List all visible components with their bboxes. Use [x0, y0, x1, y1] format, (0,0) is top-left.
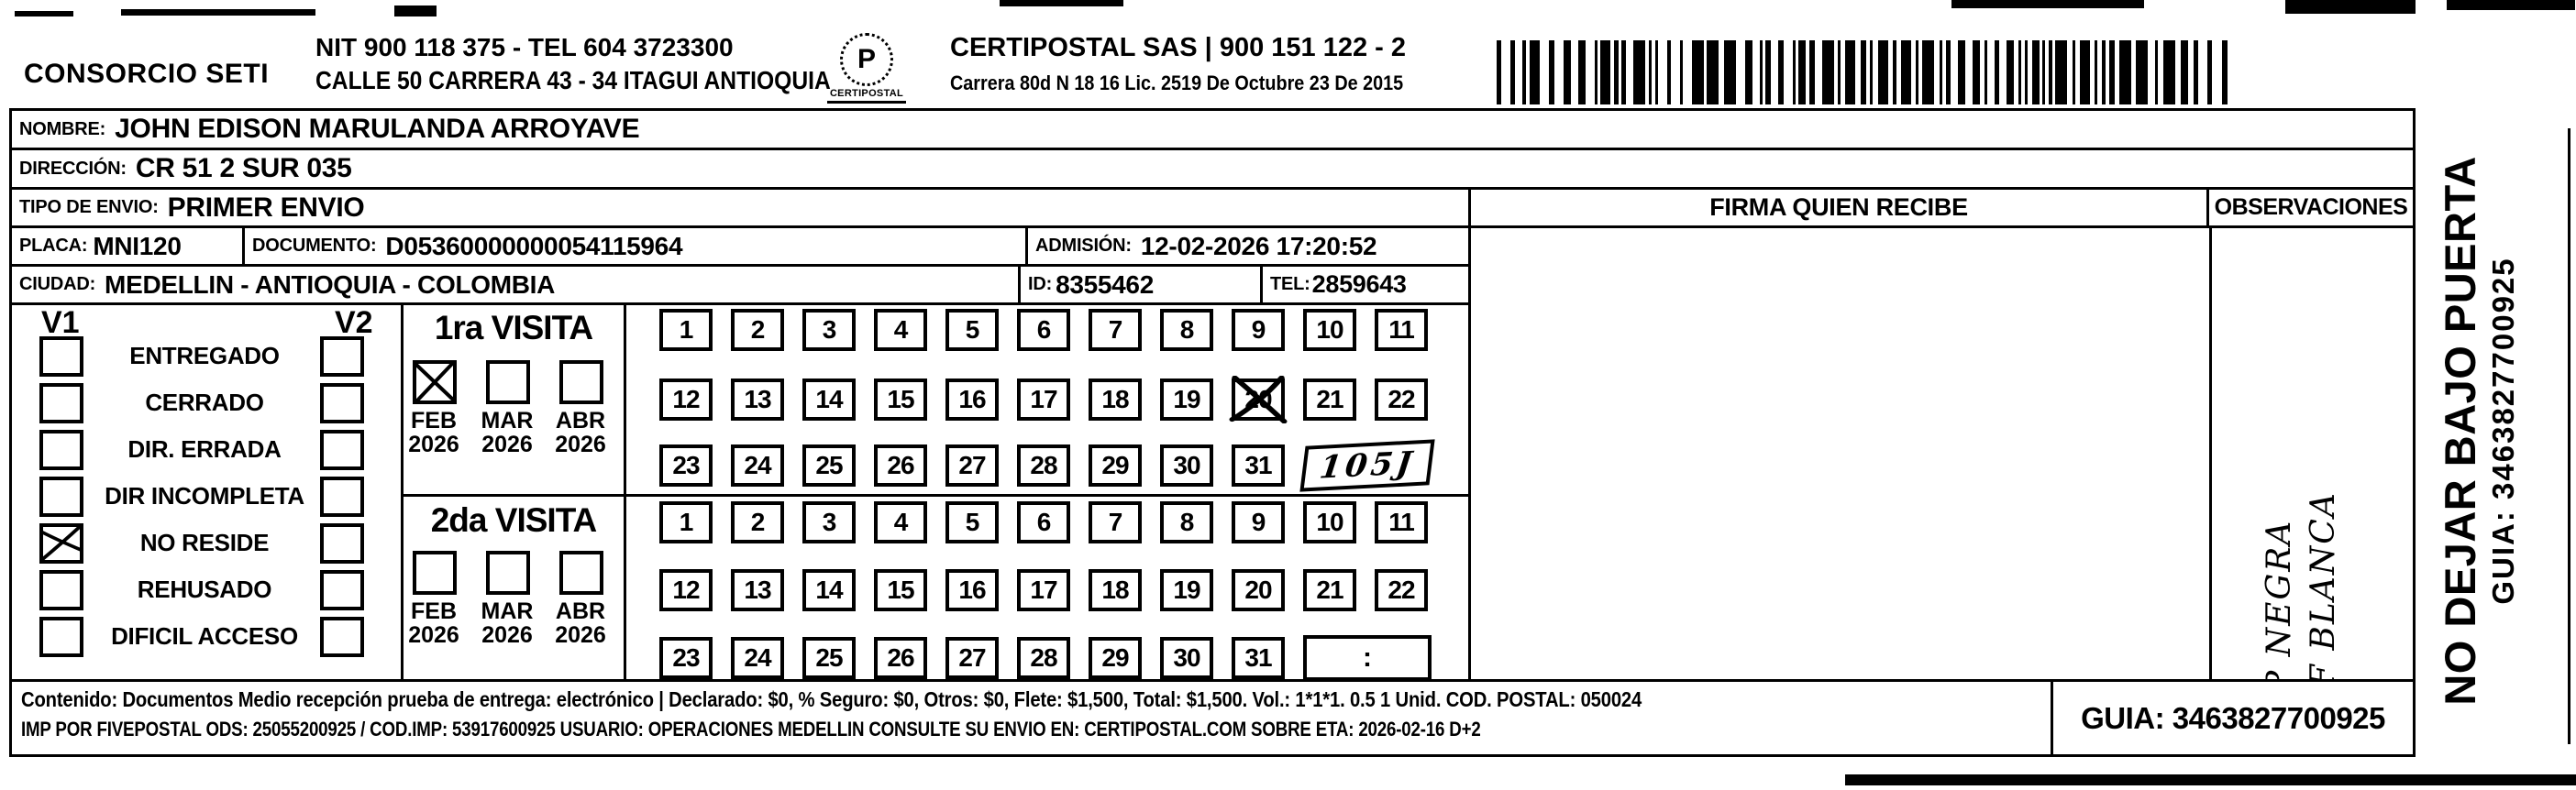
- visit1-day-cell-5[interactable]: 5: [945, 309, 999, 351]
- visit2-day-cell-9[interactable]: 9: [1232, 501, 1285, 543]
- status-option-label: DIFICIL ACCESO: [89, 613, 320, 660]
- visit1-day-cell-7[interactable]: 7: [1089, 309, 1142, 351]
- status-option-label: REHUSADO: [89, 566, 320, 613]
- visit2-day-cell-22[interactable]: 22: [1375, 569, 1428, 611]
- admision-value: 12-02-2026 17:20:52: [1141, 232, 1376, 261]
- guia-number-box: GUIA: 3463827700925: [2051, 682, 2413, 754]
- placa-cell: PLACA: MNI120: [12, 228, 245, 264]
- visit-title-1: 1ra VISITA: [404, 309, 624, 347]
- day-row: 232425262728293031105J: [659, 444, 1432, 488]
- visit2-day-cell-21[interactable]: 21: [1303, 569, 1356, 611]
- visit2-day-cell-4[interactable]: 4: [874, 501, 927, 543]
- checkbox-v2-cerrado[interactable]: [320, 383, 364, 423]
- day-row: 1234567891011: [659, 309, 1428, 351]
- visit1-day-cell-6[interactable]: 6: [1017, 309, 1070, 351]
- scan-artifact: [1845, 774, 2576, 785]
- visit-divider: [404, 494, 1468, 497]
- logo-tagline-smudge: [827, 101, 906, 104]
- visit2-day-cell-7[interactable]: 7: [1089, 501, 1142, 543]
- visit2-day-cell-31[interactable]: 31: [1232, 637, 1285, 679]
- visit2-day-cell-14[interactable]: 14: [802, 569, 856, 611]
- visit1-month-checkbox-feb[interactable]: [413, 360, 457, 404]
- carrier-address: Carrera 80d N 18 16 Lic. 2519 De Octubre…: [950, 71, 1403, 95]
- status-option-row: REHUSADO: [12, 566, 401, 613]
- status-option-label: CERRADO: [89, 379, 320, 426]
- month-year-label: 2026: [477, 622, 537, 649]
- visit1-day-cell-17[interactable]: 17: [1017, 379, 1070, 421]
- visit1-day-cell-26[interactable]: 26: [874, 444, 927, 487]
- scan-artifact: [2285, 0, 2416, 14]
- visit1-day-cell-25[interactable]: 25: [802, 444, 856, 487]
- visit1-day-cell-16[interactable]: 16: [945, 379, 999, 421]
- tipo-envio-value: PRIMER ENVIO: [168, 192, 365, 224]
- visit2-day-cell-6[interactable]: 6: [1017, 501, 1070, 543]
- tel-value: 2859643: [1312, 270, 1407, 299]
- documento-value: D05360000000054115964: [385, 232, 682, 261]
- visit1-day-cell-15[interactable]: 15: [874, 379, 927, 421]
- checkbox-v2-entregado[interactable]: [320, 336, 364, 377]
- delivery-receipt-scan: CONSORCIO SETI NIT 900 118 375 - TEL 604…: [0, 0, 2576, 790]
- tipo-envio-row: TIPO DE ENVIO: PRIMER ENVIO: [12, 190, 1471, 228]
- visit-month-column: 1ra VISITAFEB2026MAR2026ABR20262da VISIT…: [404, 305, 626, 679]
- day-row: 1213141516171819202122: [659, 379, 1428, 421]
- id-cell: ID: 8355462: [1021, 267, 1263, 302]
- footer-band: Contenido: Documentos Medio recepción pr…: [12, 679, 2413, 754]
- visit2-day-cell-10[interactable]: 10: [1303, 501, 1356, 543]
- status-options: ENTREGADOCERRADODIR. ERRADADIR INCOMPLET…: [12, 333, 401, 660]
- checkbox-v1-dir-incompleta[interactable]: [39, 477, 83, 517]
- observaciones-title: OBSERVACIONES: [2209, 190, 2413, 225]
- visit2-day-cell-20[interactable]: 20: [1232, 569, 1285, 611]
- status-option-label: NO RESIDE: [89, 520, 320, 566]
- nombre-row: NOMBRE: JOHN EDISON MARULANDA ARROYAVE: [12, 111, 2413, 150]
- visit1-day-cell-19[interactable]: 19: [1160, 379, 1213, 421]
- nombre-value: JOHN EDISON MARULANDA ARROYAVE: [115, 114, 639, 145]
- visit-title-2: 2da VISITA: [404, 501, 624, 540]
- visit1-day-cell-27[interactable]: 27: [945, 444, 999, 487]
- status-option-row: DIFICIL ACCESO: [12, 613, 401, 660]
- visit1-day-cell-24[interactable]: 24: [731, 444, 784, 487]
- checkbox-v1-dificil-acceso[interactable]: [39, 617, 83, 657]
- status-option-label: ENTREGADO: [89, 333, 320, 379]
- visit1-day-cell-11[interactable]: 11: [1375, 309, 1428, 351]
- visit1-day-cell-30[interactable]: 30: [1160, 444, 1213, 487]
- checkbox-v2-dificil-acceso[interactable]: [320, 617, 364, 657]
- month-year-label: 2026: [404, 622, 464, 649]
- ciudad-value: MEDELLIN - ANTIOQUIA - COLOMBIA: [105, 270, 555, 300]
- documento-cell: DOCUMENTO: D05360000000054115964: [245, 228, 1028, 264]
- visit2-month-checkbox-feb[interactable]: [413, 551, 457, 595]
- visit1-day-cell-18[interactable]: 18: [1089, 379, 1142, 421]
- visit1-day-cell-29[interactable]: 29: [1089, 444, 1142, 487]
- visit2-day-cell-30[interactable]: 30: [1160, 637, 1213, 679]
- status-option-row: DIR. ERRADA: [12, 426, 401, 473]
- placa-documento-admision-row: PLACA: MNI120 DOCUMENTO: D05360000000054…: [12, 228, 1471, 267]
- carrier-name: CERTIPOSTAL SAS | 900 151 122 - 2: [950, 33, 1406, 63]
- admision-cell: ADMISIÓN: 12-02-2026 17:20:52: [1028, 228, 1468, 264]
- visit2-day-cell-15[interactable]: 15: [874, 569, 927, 611]
- observation-line: P NEGRA: [2258, 299, 2302, 693]
- month-label: ABR: [550, 598, 611, 625]
- status-option-row: CERRADO: [12, 379, 401, 426]
- month-label: FEB: [404, 598, 464, 625]
- ciudad-cell: CIUDAD: MEDELLIN - ANTIOQUIA - COLOMBIA: [12, 267, 1021, 302]
- direccion-row: DIRECCIÓN: CR 51 2 SUR 035: [12, 150, 2413, 190]
- checkbox-v2-dir-errada[interactable]: [320, 430, 364, 470]
- visit1-day-cell-20[interactable]: 20: [1232, 379, 1285, 421]
- visit2-day-cell-17[interactable]: 17: [1017, 569, 1070, 611]
- scan-artifact: [2568, 128, 2570, 744]
- visit2-day-cell-19[interactable]: 19: [1160, 569, 1213, 611]
- visit2-month-checkbox-abr[interactable]: [559, 551, 603, 595]
- tel-cell: TEL: 2859643: [1263, 267, 1468, 302]
- signature-header-band: FIRMA QUIEN RECIBE OBSERVACIONES: [1471, 190, 2413, 228]
- visit2-day-cell-8[interactable]: 8: [1160, 501, 1213, 543]
- sender-address: CALLE 50 CARRERA 43 - 34 ITAGUI ANTIOQUI…: [315, 66, 831, 95]
- visit2-day-cell-5[interactable]: 5: [945, 501, 999, 543]
- month-year-label: 2026: [404, 432, 464, 458]
- visit1-time-field[interactable]: 105J: [1299, 439, 1434, 491]
- checkbox-v2-dir-incompleta[interactable]: [320, 477, 364, 517]
- visit1-day-cell-3[interactable]: 3: [802, 309, 856, 351]
- certipostal-logo-text: CERTIPOSTAL: [822, 88, 912, 99]
- month-label: ABR: [550, 408, 611, 434]
- visit1-day-cell-28[interactable]: 28: [1017, 444, 1070, 487]
- delivery-status-panel: V1 V2 ENTREGADOCERRADODIR. ERRADADIR INC…: [12, 305, 404, 679]
- checkbox-v1-rehusado[interactable]: [39, 570, 83, 610]
- tel-label: TEL:: [1270, 274, 1310, 295]
- visit2-day-cell-27[interactable]: 27: [945, 637, 999, 679]
- tracking-barcode: [1497, 40, 2230, 104]
- certipostal-stamp-icon: P: [840, 33, 893, 86]
- visit2-time-field[interactable]: :: [1303, 635, 1432, 681]
- visit2-day-cell-12[interactable]: 12: [659, 569, 713, 611]
- direccion-value: CR 51 2 SUR 035: [136, 153, 352, 184]
- visit2-day-cell-16[interactable]: 16: [945, 569, 999, 611]
- month-label: MAR: [477, 598, 537, 625]
- visit1-day-cell-4[interactable]: 4: [874, 309, 927, 351]
- visit-grid: V1 V2 ENTREGADOCERRADODIR. ERRADADIR INC…: [12, 305, 1471, 679]
- documento-label: DOCUMENTO:: [252, 236, 376, 257]
- month-label: FEB: [404, 408, 464, 434]
- checkbox-v2-rehusado[interactable]: [320, 570, 364, 610]
- checkbox-v1-cerrado[interactable]: [39, 383, 83, 423]
- visit1-day-cell-21[interactable]: 21: [1303, 379, 1356, 421]
- placa-value: MNI120: [93, 232, 181, 261]
- scan-artifact: [394, 5, 437, 16]
- tipo-envio-label: TIPO DE ENVIO:: [19, 197, 159, 218]
- stamp-glyph: P: [857, 44, 876, 75]
- nombre-label: NOMBRE:: [19, 119, 105, 140]
- footer-details: Contenido: Documentos Medio recepción pr…: [12, 682, 2051, 754]
- visit1-month-checkbox-abr[interactable]: [559, 360, 603, 404]
- status-option-label: DIR INCOMPLETA: [89, 473, 320, 520]
- observations-handwriting: P NEGRA F BLANCA: [2258, 299, 2353, 693]
- visit2-month-checkbox-mar[interactable]: [486, 551, 530, 595]
- handwritten-x-mark: [1227, 376, 1289, 423]
- visit2-day-cell-11[interactable]: 11: [1375, 501, 1428, 543]
- visit2-day-cell-25[interactable]: 25: [802, 637, 856, 679]
- scan-artifact: [1000, 0, 1123, 6]
- visit1-day-cell-10[interactable]: 10: [1303, 309, 1356, 351]
- visit2-day-cell-3[interactable]: 3: [802, 501, 856, 543]
- visit1-day-cell-12[interactable]: 12: [659, 379, 713, 421]
- sender-company-name: CONSORCIO SETI: [24, 59, 269, 90]
- month-label: MAR: [477, 408, 537, 434]
- visit1-day-cell-23[interactable]: 23: [659, 444, 713, 487]
- visit2-day-cell-28[interactable]: 28: [1017, 637, 1070, 679]
- checkbox-v2-no-reside[interactable]: [320, 523, 364, 564]
- ciudad-id-tel-row: CIUDAD: MEDELLIN - ANTIOQUIA - COLOMBIA …: [12, 267, 1471, 305]
- id-label: ID:: [1028, 274, 1052, 295]
- day-row: 1213141516171819202122: [659, 569, 1428, 611]
- signature-area[interactable]: [1471, 228, 2209, 679]
- month-year-label: 2026: [477, 432, 537, 458]
- visit1-day-cell-2[interactable]: 2: [731, 309, 784, 351]
- admision-label: ADMISIÓN:: [1035, 236, 1132, 257]
- handwritten-x-mark: [39, 523, 83, 564]
- month-year-label: 2026: [550, 432, 611, 458]
- handwritten-x-mark: [413, 360, 457, 404]
- observation-line: F BLANCA: [2302, 299, 2346, 687]
- visit1-day-cell-9[interactable]: 9: [1232, 309, 1285, 351]
- direccion-label: DIRECCIÓN:: [19, 159, 127, 180]
- scan-artifact: [121, 9, 315, 16]
- visit1-day-cell-13[interactable]: 13: [731, 379, 784, 421]
- visit2-day-cell-13[interactable]: 13: [731, 569, 784, 611]
- side-note-strip: NO DEJAR BAJO PUERTA GUIA: 3463827700925: [2437, 128, 2537, 733]
- observations-divider: [2209, 228, 2212, 679]
- visit1-day-cell-31[interactable]: 31: [1232, 444, 1285, 487]
- status-option-label: DIR. ERRADA: [89, 426, 320, 473]
- visit2-day-cell-23[interactable]: 23: [659, 637, 713, 679]
- visit1-day-cell-8[interactable]: 8: [1160, 309, 1213, 351]
- visit1-month-checkbox-mar[interactable]: [486, 360, 530, 404]
- footer-content-line: Contenido: Documentos Medio recepción pr…: [21, 687, 1807, 712]
- day-row: 1234567891011: [659, 501, 1428, 543]
- sender-nit-tel: NIT 900 118 375 - TEL 604 3723300: [315, 33, 734, 62]
- visit2-day-cell-26[interactable]: 26: [874, 637, 927, 679]
- checkbox-v1-entregado[interactable]: [39, 336, 83, 377]
- visit2-day-cell-18[interactable]: 18: [1089, 569, 1142, 611]
- delivery-form-table: NOMBRE: JOHN EDISON MARULANDA ARROYAVE D…: [9, 108, 2416, 757]
- visit1-day-cell-14[interactable]: 14: [802, 379, 856, 421]
- scan-artifact: [2447, 0, 2575, 10]
- status-option-row: NO RESIDE: [12, 520, 401, 566]
- visit2-day-cell-1[interactable]: 1: [659, 501, 713, 543]
- checkbox-v1-no-reside[interactable]: [39, 523, 83, 564]
- visit2-day-cell-29[interactable]: 29: [1089, 637, 1142, 679]
- side-guia-number: GUIA: 3463827700925: [2484, 128, 2523, 733]
- ciudad-label: CIUDAD:: [19, 274, 95, 295]
- placa-label: PLACA:: [19, 236, 87, 257]
- no-dejar-bajo-puerta-warning: NO DEJAR BAJO PUERTA: [2437, 128, 2484, 733]
- month-year-label: 2026: [550, 622, 611, 649]
- status-option-row: DIR INCOMPLETA: [12, 473, 401, 520]
- visit2-day-cell-2[interactable]: 2: [731, 501, 784, 543]
- day-row: 232425262728293031:: [659, 637, 1432, 681]
- visit1-day-cell-1[interactable]: 1: [659, 309, 713, 351]
- scan-artifact: [15, 11, 73, 16]
- footer-imp-line: IMP POR FIVEPOSTAL ODS: 25055200925 / CO…: [21, 718, 1746, 741]
- scan-artifact: [1951, 0, 2144, 8]
- status-option-row: ENTREGADO: [12, 333, 401, 379]
- visit2-day-cell-24[interactable]: 24: [731, 637, 784, 679]
- firma-quien-recibe-title: FIRMA QUIEN RECIBE: [1471, 190, 2209, 225]
- checkbox-v1-dir-errada[interactable]: [39, 430, 83, 470]
- id-value: 8355462: [1056, 270, 1154, 300]
- visit1-day-cell-22[interactable]: 22: [1375, 379, 1428, 421]
